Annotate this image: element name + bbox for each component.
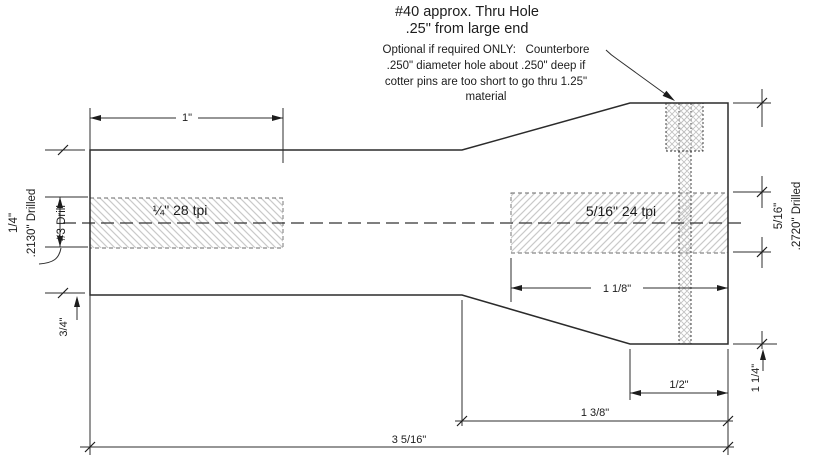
dim-large-end-diameter: 1 1/4" — [750, 349, 766, 392]
dim-right-drilled-hole: 5/16" .2720" Drilled Letter size I — [733, 89, 817, 349]
dim-text: 3 5/16" — [392, 434, 427, 446]
leader-curve — [39, 248, 61, 264]
right-hole-drill-text: .2720" Drilled — [791, 182, 803, 251]
arrowhead-right — [272, 115, 283, 121]
dim-large-section-length: 1 3/8" — [455, 300, 733, 426]
annotation-block: #40 approx. Thru Hole .25" from large en… — [383, 4, 590, 103]
annotation-note-line2: .250" diameter hole about .250" deep if — [387, 60, 587, 72]
dim-text: 3/4" — [58, 317, 70, 336]
dim-text: 1 1/8" — [603, 283, 631, 295]
right-hole-size-text: 5/16" — [773, 203, 785, 229]
counterbore-hatch — [666, 103, 703, 151]
arrowhead-left — [90, 115, 101, 121]
left-hole-size-text: 1/4" — [8, 213, 20, 233]
annotation-note-line4: material — [466, 91, 507, 103]
dim-text: 1 1/4" — [750, 364, 762, 392]
engineering-drawing: #40 approx. Thru Hole .25" from large en… — [0, 0, 817, 463]
dim-text: 1/2" — [669, 379, 688, 391]
leader-arrowhead — [74, 296, 80, 307]
leader-arrowhead — [663, 91, 675, 101]
dim-right-thread-length: 1 1/8" — [511, 258, 728, 302]
annotation-title-line2: .25" from large end — [406, 21, 529, 37]
drawing-canvas: #40 approx. Thru Hole .25" from large en… — [0, 0, 817, 463]
dim-text: 1 3/8" — [581, 407, 609, 419]
dim-left-drilled-hole: 1/4" .2130" Drilled #3 Drill — [8, 189, 88, 264]
leader-arrowhead — [760, 349, 766, 360]
counterbore-leader-arrow — [606, 50, 675, 101]
arrowhead-right — [717, 390, 728, 396]
left-hole-drill-text: .2130" Drilled — [26, 189, 38, 258]
slash-ticks — [757, 98, 767, 349]
arrowhead-left — [511, 285, 522, 291]
dim-text: 1" — [182, 112, 192, 124]
annotation-note-line1: Optional if required ONLY: Counterbore — [383, 44, 590, 56]
dim-step-length: 1/2" — [630, 349, 728, 400]
dim-left-thread-length: 1" — [90, 108, 283, 163]
left-thread-label: ¼" 28 tpi — [153, 202, 208, 218]
annotation-title-line1: #40 approx. Thru Hole — [395, 4, 539, 20]
counterbore — [666, 103, 703, 151]
arrowhead-right — [717, 285, 728, 291]
annotation-note-line3: cotter pins are too short to go thru 1.2… — [385, 76, 587, 88]
leader-line — [606, 50, 668, 96]
right-thread-label: 5/16" 24 tpi — [586, 203, 656, 219]
left-hole-bit-text: #3 Drill — [56, 205, 68, 241]
arrowhead-left — [630, 390, 641, 396]
